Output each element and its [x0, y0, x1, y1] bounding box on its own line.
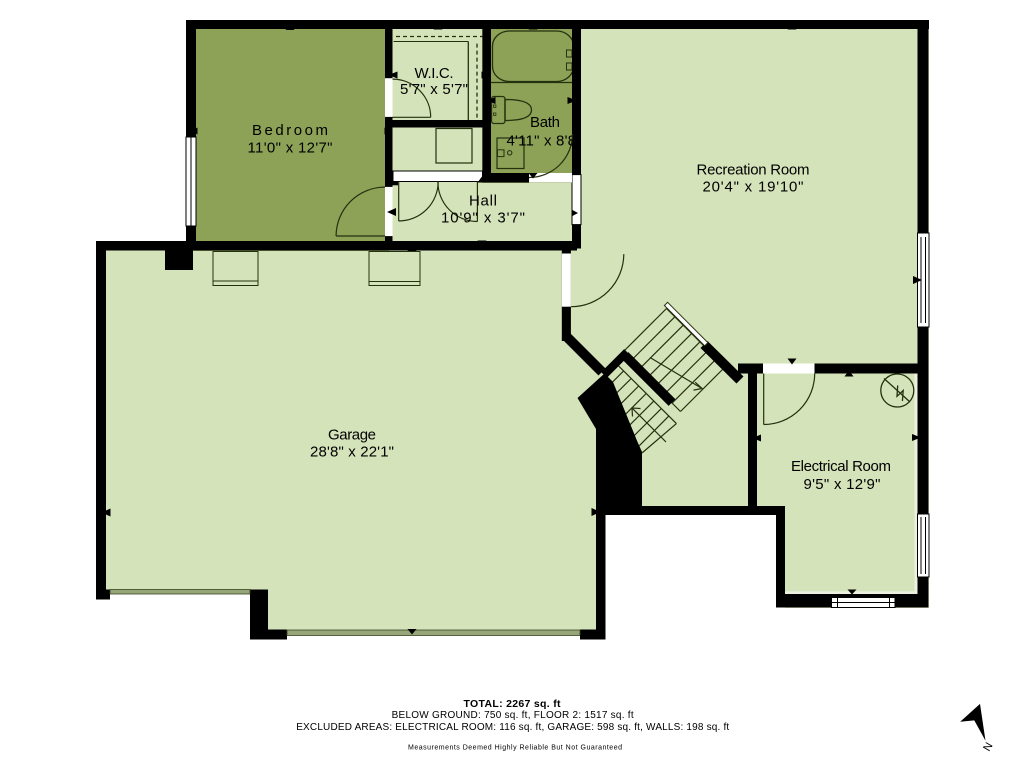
svg-text:Hall: Hall	[469, 193, 497, 210]
svg-text:20'4" x 19'10": 20'4" x 19'10"	[703, 179, 804, 196]
svg-text:Bath: Bath	[530, 114, 560, 131]
svg-text:11'0" x 12'7": 11'0" x 12'7"	[248, 140, 333, 157]
svg-text:10'9" x 3'7": 10'9" x 3'7"	[441, 210, 525, 227]
svg-text:9'5" x 12'9": 9'5" x 12'9"	[804, 476, 881, 493]
svg-text:5'7" x 5'7": 5'7" x 5'7"	[400, 81, 468, 98]
svg-text:Measurements Deemed Highly Rel: Measurements Deemed Highly Reliable But …	[408, 745, 622, 752]
svg-text:Electrical Room: Electrical Room	[791, 458, 891, 475]
svg-text:N: N	[981, 741, 995, 754]
svg-text:TOTAL: 2267 sq. ft: TOTAL: 2267 sq. ft	[464, 698, 562, 710]
svg-text:BELOW GROUND: 750 sq. ft, FLOO: BELOW GROUND: 750 sq. ft, FLOOR 2: 1517 …	[392, 710, 634, 721]
svg-text:Recreation Room: Recreation Room	[697, 162, 810, 179]
svg-text:28'8" x 22'1": 28'8" x 22'1"	[310, 444, 394, 461]
svg-text:4'11" x 8'8": 4'11" x 8'8"	[507, 133, 582, 150]
svg-text:EXCLUDED AREAS: ELECTRICAL ROO: EXCLUDED AREAS: ELECTRICAL ROOM: 116 sq.…	[296, 722, 729, 733]
svg-text:Garage: Garage	[328, 427, 376, 444]
svg-text:W.I.C.: W.I.C.	[415, 65, 454, 82]
